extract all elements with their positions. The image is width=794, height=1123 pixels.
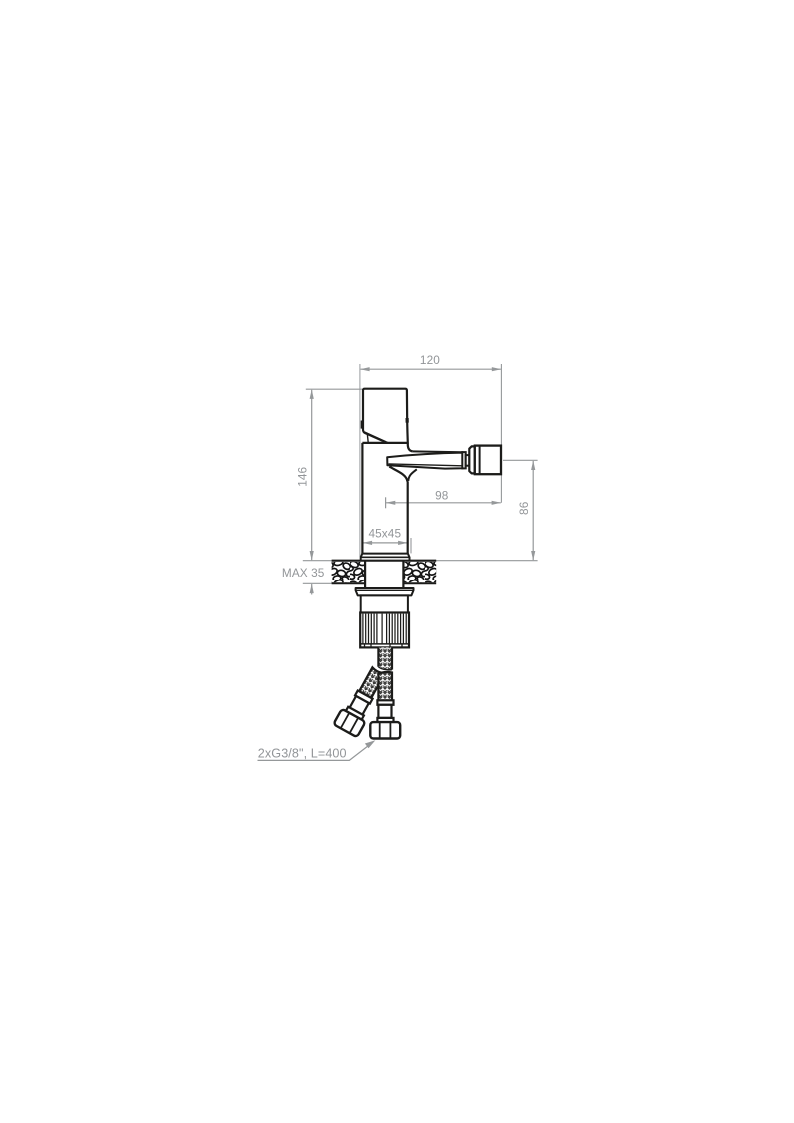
svg-text:120: 120 xyxy=(420,353,440,367)
svg-text:146: 146 xyxy=(296,466,310,486)
svg-text:98: 98 xyxy=(435,489,449,503)
svg-text:45x45: 45x45 xyxy=(368,527,401,541)
svg-text:86: 86 xyxy=(517,501,531,515)
svg-text:2xG3/8", L=400: 2xG3/8", L=400 xyxy=(258,747,347,761)
svg-text:MAX 35: MAX 35 xyxy=(282,566,325,580)
